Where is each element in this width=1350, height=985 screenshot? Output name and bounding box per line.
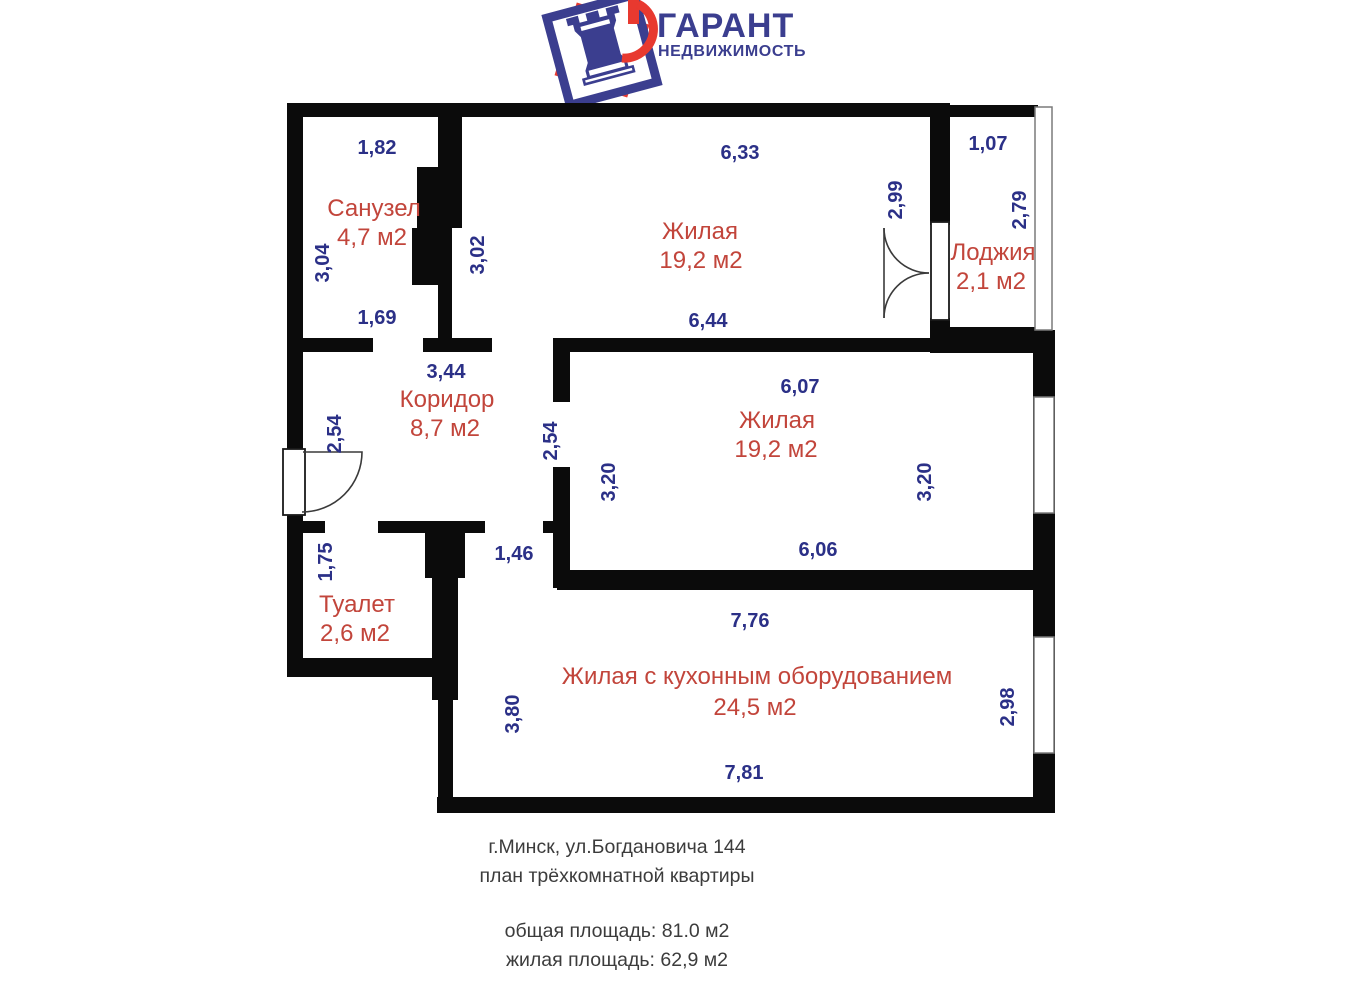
dimension-label: 6,06 — [799, 539, 838, 561]
wall-segment — [438, 285, 452, 340]
windows — [1034, 107, 1054, 753]
living-room-window — [1034, 397, 1054, 513]
plan-type-line: план трёхкомнатной квартиры — [287, 862, 947, 891]
wall-segment — [287, 658, 433, 677]
dimension-label: 3,20 — [914, 463, 936, 502]
dimension-label: 6,07 — [781, 376, 820, 398]
entrance-door-swing-arc — [302, 452, 362, 512]
room-area-koridor: 8,7 м2 — [410, 415, 480, 442]
wall-segment — [432, 578, 458, 700]
dimension-label: 1,75 — [315, 543, 337, 582]
room-label-tualet: Туалет — [319, 591, 395, 618]
dimension-label: 6,33 — [721, 142, 760, 164]
logo-key-shaft — [628, 0, 639, 24]
dimension-label: 1,46 — [495, 543, 534, 565]
logo-title: ГАРАНТ — [657, 7, 794, 45]
balcony-door-swing-arc-lower — [884, 273, 929, 318]
wall-segment — [303, 521, 325, 533]
dimension-label: 1,07 — [969, 133, 1008, 155]
dimension-label: 7,76 — [731, 610, 770, 632]
room-label-kitchen: Жилая с кухонным оборудованием — [562, 663, 952, 690]
wall-segment — [543, 521, 570, 533]
total-area-line: общая площадь: 81.0 м2 — [287, 917, 947, 946]
dimension-label: 2,79 — [1009, 191, 1031, 230]
room-area-sanuzel: 4,7 м2 — [337, 224, 407, 251]
wall-segment — [287, 338, 373, 352]
dimension-label: 1,69 — [358, 307, 397, 329]
wall-segment — [423, 338, 492, 352]
wall-segment — [553, 338, 570, 402]
dimension-label: 3,20 — [598, 463, 620, 502]
dimension-label: 3,02 — [467, 236, 489, 275]
wall-segment — [287, 103, 303, 452]
entrance-door — [283, 449, 362, 515]
dimension-label: 6,44 — [689, 310, 729, 332]
balcony-door-swing-arc-upper — [884, 228, 929, 273]
wall-segment — [438, 117, 462, 169]
room-label-zhilaya-mid: Жилая — [739, 407, 815, 434]
room-area-kitchen: 24,5 м2 — [713, 694, 796, 721]
wall-segment — [930, 103, 950, 225]
wall-segment — [378, 521, 485, 533]
address-line: г.Минск, ул.Богдановича 144 — [287, 833, 947, 862]
wall-segment — [287, 512, 303, 677]
dimension-label: 2,54 — [540, 421, 562, 461]
footer-address-block: г.Минск, ул.Богдановича 144 план трёхком… — [287, 833, 947, 891]
room-area-zhilaya-top: 19,2 м2 — [659, 247, 742, 274]
dimension-label: 7,81 — [725, 762, 764, 784]
wall-segment — [438, 700, 453, 800]
living-area-line: жилая площадь: 62,9 м2 — [287, 946, 947, 975]
floor-plan-page: ♜ ГАРАНТ НЕДВИЖИМОСТЬ — [0, 0, 1350, 985]
dimension-label: 2,98 — [997, 688, 1019, 727]
room-label-zhilaya-top: Жилая — [662, 218, 738, 245]
kitchen-window — [1034, 637, 1054, 753]
logo-subtitle: НЕДВИЖИМОСТЬ — [658, 43, 806, 60]
room-area-zhilaya-mid: 19,2 м2 — [734, 436, 817, 463]
dimension-label: 3,44 — [427, 361, 467, 383]
wall-segment — [287, 103, 950, 117]
room-label-loggia: Лоджия — [950, 239, 1035, 266]
room-label-sanuzel: Санузел — [327, 195, 421, 222]
wall-segment — [417, 167, 462, 228]
wall-segment — [948, 105, 1038, 117]
room-label-koridor: Коридор — [400, 386, 495, 413]
room-area-loggia: 2,1 м2 — [956, 268, 1026, 295]
wall-segment — [930, 327, 1035, 353]
entrance-door-leaf — [283, 449, 305, 515]
dimension-label: 1,82 — [358, 137, 397, 159]
balcony-door — [884, 222, 949, 320]
dimension-label: 3,04 — [312, 243, 334, 283]
room-area-tualet: 2,6 м2 — [320, 620, 390, 647]
wall-segment — [425, 532, 465, 578]
dimension-label: 2,99 — [885, 181, 907, 220]
loggia-window — [1035, 107, 1052, 330]
wall-segment — [437, 797, 1055, 813]
balcony-door-frame — [931, 222, 949, 320]
dimension-label: 3,80 — [502, 695, 524, 734]
footer-area-block: общая площадь: 81.0 м2 жилая площадь: 62… — [287, 917, 947, 975]
wall-segment — [412, 228, 452, 285]
wall-segment — [557, 570, 1055, 590]
dimension-label: 2,54 — [324, 414, 346, 454]
logo: ♜ ГАРАНТ НЕДВИЖИМОСТЬ — [547, 0, 806, 110]
